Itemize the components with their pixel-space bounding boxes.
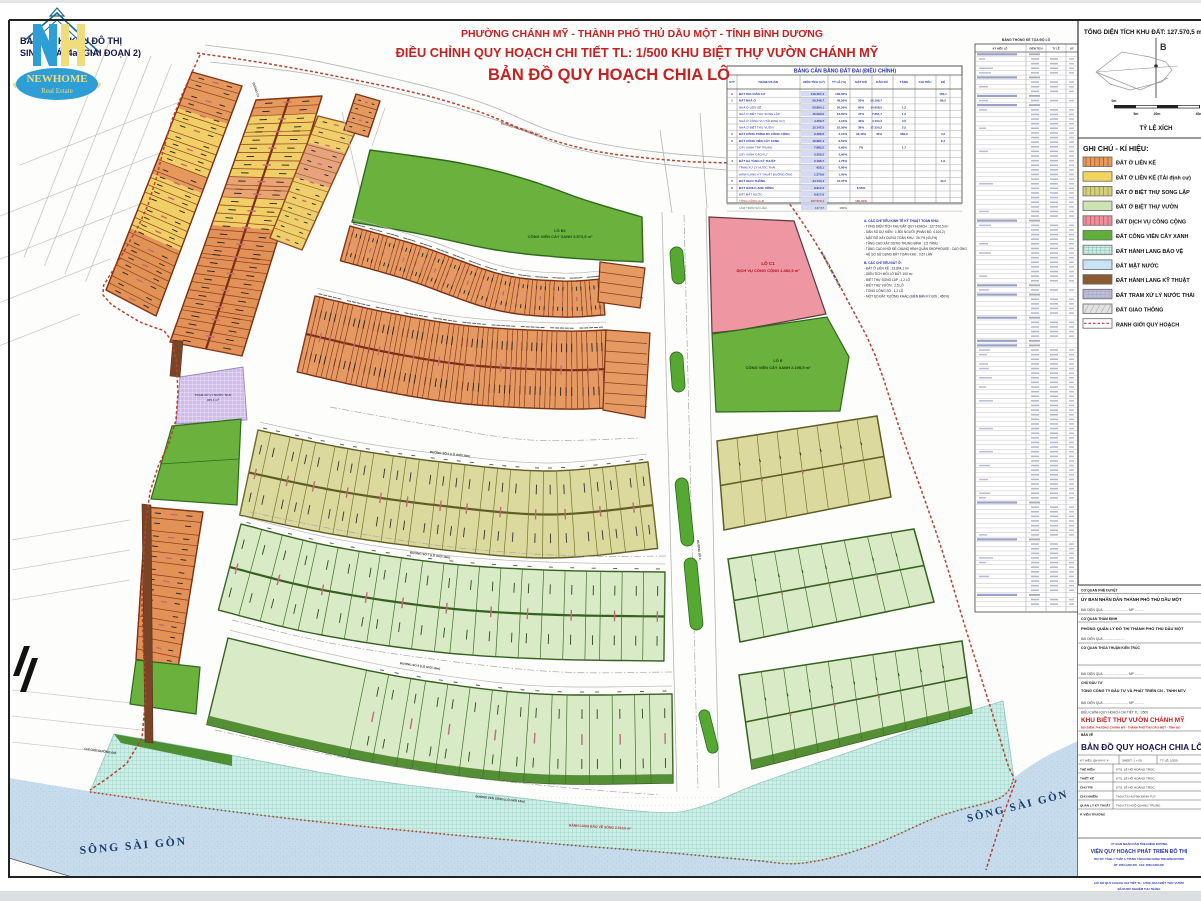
svg-text:2,90%: 2,90% — [838, 152, 847, 156]
svg-text:LÀM TRÒN SỐ LIỆU: LÀM TRÒN SỐ LIỆU — [739, 205, 767, 210]
svg-text:RANH GIỚI QUY HOẠCH: RANH GIỚI QUY HOẠCH — [1116, 320, 1179, 328]
svg-text:CƠ QUAN PHÊ DUYỆT: CƠ QUAN PHÊ DUYỆT — [1081, 588, 1119, 593]
svg-text:ỦY BAN NHÂN DÂN THÀNH PHỐ THỦ: ỦY BAN NHÂN DÂN THÀNH PHỐ THỦ DẦU MỘT — [1081, 597, 1182, 602]
svg-text:BẢN ĐỒ QUY HOẠCH CHIA LÔ: BẢN ĐỒ QUY HOẠCH CHIA LÔ — [1081, 741, 1201, 752]
svg-text:1,00%: 1,00% — [838, 172, 847, 176]
svg-text:ĐẤT Ở BIỆT THỰ SONG LẬP: ĐẤT Ở BIỆT THỰ SONG LẬP — [1116, 188, 1190, 196]
svg-text:36%: 36% — [858, 126, 864, 130]
svg-text:17.350,2: 17.350,2 — [870, 126, 882, 130]
svg-text:4,10%: 4,10% — [838, 119, 847, 123]
svg-text:QUẢN LÝ KỸ THUẬT: QUẢN LÝ KỸ THUẬT — [1080, 802, 1111, 807]
svg-text:CÔNG VIÊN CÂY XANH 3.573,5 m²: CÔNG VIÊN CÂY XANH 3.573,5 m² — [528, 234, 594, 239]
svg-text:MẬT ĐỘ: MẬT ĐỘ — [855, 79, 867, 84]
svg-text:15.093,5: 15.093,5 — [812, 112, 824, 116]
svg-text:Real Estate: Real Estate — [41, 87, 73, 95]
svg-text:SHEET: 1 + 05: SHEET: 1 + 05 — [1122, 759, 1142, 763]
svg-text:B- CÁC CHỈ TIÊU ĐẤT Ở:: B- CÁC CHỈ TIÊU ĐẤT Ở: — [864, 260, 902, 265]
svg-text:CHỦ TRÌ: CHỦ TRÌ — [1080, 784, 1093, 789]
svg-text:KHU BIỆT THỰ VƯỜN CHÁNH MỸ: KHU BIỆT THỰ VƯỜN CHÁNH MỸ — [1081, 715, 1185, 724]
svg-text:BẢN ĐỒ QUY HOẠCH CHIA LÔ: BẢN ĐỒ QUY HOẠCH CHIA LÔ — [488, 65, 730, 84]
svg-text:0m: 0m — [1112, 99, 1117, 103]
svg-text:ĐẤT GIAO THÔNG: ĐẤT GIAO THÔNG — [1116, 306, 1163, 314]
svg-text:ĐÃ ĐƯỢC NGHIỆM THU THÁNG: ĐÃ ĐƯỢC NGHIỆM THU THÁNG — [1118, 886, 1161, 891]
svg-text:A- CÁC CHỈ TIÊU KINH TẾ KỸ THU: A- CÁC CHỈ TIÊU KINH TẾ KỸ THUẬT TOÀN KH… — [864, 218, 939, 223]
svg-text:100,00%: 100,00% — [855, 199, 867, 203]
svg-text:10.987,4: 10.987,4 — [812, 139, 824, 143]
svg-text:ĐẤT HẠ TẦNG KỸ THUẬT: ĐẤT HẠ TẦNG KỸ THUẬT — [739, 158, 776, 163]
svg-text:1,2: 1,2 — [902, 105, 907, 109]
svg-text:ĐẠI DIỆN QUA .................: ĐẠI DIỆN QUA ...........................… — [1081, 607, 1144, 612]
svg-text:NHÀ Ở LIÊN KẾ: NHÀ Ở LIÊN KẾ — [739, 104, 761, 109]
svg-text:925,1: 925,1 — [816, 166, 824, 170]
svg-text:7%: 7% — [859, 146, 864, 150]
svg-text:HÀNH LANG KỸ THUẬT ĐƯỜNG ỐNG: HÀNH LANG KỸ THUẬT ĐƯỜNG ỐNG — [739, 171, 793, 176]
svg-text:20,50%: 20,50% — [837, 105, 848, 109]
svg-text:BẢNG THỐNG KÊ TỌA ĐỘ LÔ: BẢNG THỐNG KÊ TỌA ĐỘ LÔ — [1002, 37, 1051, 42]
svg-text:TỶ LỆ (%): TỶ LỆ (%) — [832, 79, 846, 84]
svg-text:- TẦNG CAO KHỐI ĐẾ CHUNG HÌNH: - TẦNG CAO KHỐI ĐẾ CHUNG HÌNH QUẦN SHOPH… — [864, 246, 967, 251]
svg-text:LÔ C1: LÔ C1 — [761, 259, 775, 266]
svg-text:CÂY XANH CÁCH LY: CÂY XANH CÁCH LY — [739, 151, 768, 156]
svg-text:1.270,6: 1.270,6 — [814, 172, 824, 176]
svg-text:TỔNG CÔNG TY ĐẦU TƯ VÀ PHÁT TR: TỔNG CÔNG TY ĐẦU TƯ VÀ PHÁT TRIỂN CN - T… — [1081, 688, 1186, 693]
svg-text:9,4: 9,4 — [941, 139, 946, 143]
svg-text:56.246,7: 56.246,7 — [812, 99, 824, 103]
svg-text:9.917,2: 9.917,2 — [814, 186, 824, 190]
svg-text:127,57: 127,57 — [815, 206, 825, 210]
svg-text:- BIỆT THỰ SONG LẬP : 1,2 LÔ: - BIỆT THỰ SONG LẬP : 1,2 LÔ — [864, 277, 911, 282]
svg-text:- ĐẤT Ở LIÊN KẾ : 23.804,1 m²: - ĐẤT Ở LIÊN KẾ : 23.804,1 m² — [864, 266, 909, 271]
svg-text:DỊCH VỤ CÔNG CỘNG 2.482,5 m²: DỊCH VỤ CÔNG CỘNG 2.482,5 m² — [736, 268, 800, 273]
svg-text:ThS.KTS NGÔ QUANG TRUNG: ThS.KTS NGÔ QUANG TRUNG — [1116, 802, 1161, 807]
svg-text:CHỦ ĐẦU TƯ: CHỦ ĐẦU TƯ — [1081, 680, 1103, 685]
svg-text:- TẦNG CAO XÂY DỰNG TRUNG BÌNH: - TẦNG CAO XÂY DỰNG TRUNG BÌNH : 2,5 TẦN… — [864, 241, 938, 245]
svg-text:3.305,2: 3.305,2 — [814, 152, 824, 156]
svg-text:40%: 40% — [876, 132, 882, 136]
svg-text:ĐẤT KHU DÂN CƯ: ĐẤT KHU DÂN CƯ — [739, 91, 766, 96]
svg-text:ĐẤT CÔNG VIÊN CÂY XANH: ĐẤT CÔNG VIÊN CÂY XANH — [739, 138, 779, 143]
svg-text:ĐT: 0650.3.822.335 - FAX: 06: ĐT: 0650.3.822.335 - FAX: 0650.3.822.335 — [1114, 863, 1164, 867]
svg-text:13,00%: 13,00% — [837, 112, 848, 116]
svg-text:ĐẤT Ở BIỆT THỰ VƯỜN: ĐẤT Ở BIỆT THỰ VƯỜN — [1116, 203, 1178, 211]
svg-text:STT: STT — [729, 80, 735, 84]
svg-text:2,5: 2,5 — [902, 126, 907, 130]
svg-text:1,2: 1,2 — [902, 112, 907, 116]
svg-text:40%: 40% — [858, 119, 864, 123]
svg-text:- BIỆT THỰ VƯỜN : 2,5 LÔ: - BIỆT THỰ VƯỜN : 2,5 LÔ — [864, 282, 904, 287]
svg-text:100,00%: 100,00% — [835, 92, 847, 96]
svg-text:NHÀ Ở BIỆT THỰ SONG LẬP: NHÀ Ở BIỆT THỰ SONG LẬP — [739, 111, 780, 116]
svg-text:THỂ HIỆN: THỂ HIỆN — [1080, 766, 1095, 771]
svg-text:60%: 60% — [858, 105, 864, 109]
svg-text:KTS. LÊ HỒ HOÀNG TRÚC: KTS. LÊ HỒ HOÀNG TRÚC — [1116, 766, 1155, 771]
svg-text:14.858,5: 14.858,5 — [870, 105, 882, 109]
svg-text:- TỔNG DIỆN TÍCH KHU ĐẤT QUY H: - TỔNG DIỆN TÍCH KHU ĐẤT QUY HOẠCH : 127… — [864, 224, 948, 229]
svg-text:1,9: 1,9 — [941, 159, 946, 163]
svg-text:40m: 40m — [1196, 112, 1201, 116]
svg-text:PHƯỜNG CHÁNH MỸ - THÀNH PHỐ TH: PHƯỜNG CHÁNH MỸ - THÀNH PHỐ THỦ DẦU MỘT … — [461, 26, 823, 40]
svg-text:LÔ E: LÔ E — [773, 358, 783, 363]
svg-text:43,40%: 43,40% — [856, 132, 867, 136]
svg-text:ĐẤT HÀNH LANG BẢO VỆ: ĐẤT HÀNH LANG BẢO VỆ — [1116, 247, 1183, 255]
svg-text:ĐẠI DIỆN QUA .................: ĐẠI DIỆN QUA ........................ — [1081, 636, 1125, 641]
svg-text:980,6: 980,6 — [900, 132, 908, 136]
svg-text:ĐẠI DIỆN QUA .................: ĐẠI DIỆN QUA ...........................… — [1081, 700, 1144, 705]
svg-text:TỶ LỆ: 1/500: TỶ LỆ: 1/500 — [1160, 758, 1178, 763]
svg-text:8,56%: 8,56% — [857, 186, 866, 190]
svg-text:ĐẤT HÀNH LANG SÔNG: ĐẤT HÀNH LANG SÔNG — [739, 185, 774, 190]
svg-text:P. VIỆN TRƯỞNG: P. VIỆN TRƯỞNG — [1080, 811, 1106, 816]
svg-text:8.917,6: 8.917,6 — [814, 193, 824, 197]
svg-text:ĐẤT DỊCH VỤ CÔNG CỘNG: ĐẤT DỊCH VỤ CÔNG CỘNG — [1116, 217, 1186, 225]
svg-text:GHI CHÚ - KÍ HIỆU:: GHI CHÚ - KÍ HIỆU: — [1083, 144, 1148, 153]
svg-text:10,50%: 10,50% — [837, 126, 848, 130]
svg-text:20m: 20m — [1154, 112, 1161, 116]
svg-text:THÀNH PHẦN: THÀNH PHẦN — [758, 79, 778, 84]
svg-text:1,76%: 1,76% — [838, 159, 847, 163]
svg-text:NEWHOME: NEWHOME — [26, 73, 87, 85]
svg-text:TRẠM XỬ LÝ NƯỚC THẢI: TRẠM XỬ LÝ NƯỚC THẢI — [739, 165, 775, 170]
svg-text:40,2: 40,2 — [940, 179, 946, 183]
svg-text:48,50%: 48,50% — [837, 99, 848, 103]
svg-text:6,60%: 6,60% — [838, 146, 847, 150]
svg-text:41,07%: 41,07% — [837, 179, 848, 183]
svg-text:50%: 50% — [858, 99, 864, 103]
svg-text:- DÂN SỐ DỰ KIẾN : 1.500 NGƯỜI: - DÂN SỐ DỰ KIẾN : 1.500 NGƯỜI (PHÂN BỐ:… — [864, 229, 945, 234]
svg-text:KÝ HIỆU QH-04 N° 4: KÝ HIỆU QH-04 N° 4 — [1080, 758, 1109, 763]
svg-text:ĐẤT NHÀ Ở: ĐẤT NHÀ Ở — [739, 98, 756, 103]
svg-text:- DIỆN TÍCH MỖI LÔ ĐẤT: 100 m²: - DIỆN TÍCH MỖI LÔ ĐẤT: 100 m² — [864, 271, 912, 276]
svg-text:TỶ LỆ XÍCH: TỶ LỆ XÍCH — [1139, 124, 1172, 132]
svg-text:100%: 100% — [839, 206, 847, 210]
svg-text:4.104,2: 4.104,2 — [872, 119, 882, 123]
svg-text:ĐẤT HÀNH LANG KỸ THUẬT: ĐẤT HÀNH LANG KỸ THUẬT — [1116, 277, 1190, 284]
svg-text:7.851,7: 7.851,7 — [872, 112, 882, 116]
svg-text:CÔNG VIÊN CÂY XANH 2.195,5 m²: CÔNG VIÊN CÂY XANH 2.195,5 m² — [746, 365, 812, 370]
svg-text:2.482,5: 2.482,5 — [814, 132, 824, 136]
svg-text:ĐẤT MẶT NƯỚC: ĐẤT MẶT NƯỚC — [739, 192, 763, 197]
svg-text:BẢN VẼ: BẢN VẼ — [1081, 732, 1093, 737]
svg-text:ĐẠI DIỆN QUA .................: ĐẠI DIỆN QUA ...........................… — [1081, 671, 1144, 676]
svg-text:- TỔNG CỘNG SỐ : 1,2 LÔ: - TỔNG CỘNG SỐ : 1,2 LÔ — [864, 288, 904, 293]
svg-text:VIỆN QUY HOẠCH PHÁT TRIỂN ĐÔ T: VIỆN QUY HOẠCH PHÁT TRIỂN ĐÔ THỊ — [1091, 847, 1188, 855]
svg-text:KTS. LÊ HỒ HOÀNG TRÚC: KTS. LÊ HỒ HOÀNG TRÚC — [1116, 775, 1155, 780]
svg-text:- HỆ SỐ SỬ DỤNG ĐẤT TOÀN KHU :: - HỆ SỐ SỬ DỤNG ĐẤT TOÀN KHU : 0,67 LẦN — [864, 252, 933, 257]
svg-text:LÔ B1: LÔ B1 — [554, 228, 567, 233]
svg-text:44.744,1: 44.744,1 — [812, 179, 824, 183]
svg-text:BẢNG CÂN BẰNG ĐẤT ĐAI (ĐIỀU CH: BẢNG CÂN BẰNG ĐẤT ĐAI (ĐIỀU CHỈNH) — [794, 67, 897, 75]
svg-text:ThS.KTS HUỲNH ĐỊNH TÚY: ThS.KTS HUỲNH ĐỊNH TÚY — [1116, 794, 1156, 798]
svg-text:925,1 m²: 925,1 m² — [207, 398, 219, 402]
svg-text:0,80%: 0,80% — [838, 166, 847, 170]
svg-text:ĐẤT GIAO THÔNG: ĐẤT GIAO THÔNG — [739, 178, 766, 183]
svg-text:CHỦ NHIỆM: CHỦ NHIỆM — [1080, 793, 1098, 798]
svg-text:HỒ SƠ QUY HOẠCH CHI TIẾT TL: 1: HỒ SƠ QUY HOẠCH CHI TIẾT TL: 1/500. KHU … — [1094, 880, 1183, 885]
svg-text:116.457,4: 116.457,4 — [811, 92, 825, 96]
svg-text:KẾ: KẾ — [941, 79, 945, 84]
svg-text:B: B — [1160, 42, 1167, 52]
svg-text:ỦY BAN NHÂN DÂN TỈNH BÌNH DƯƠN: ỦY BAN NHÂN DÂN TỈNH BÌNH DƯƠNG — [1111, 841, 1168, 846]
svg-text:TẦNG: TẦNG — [900, 80, 909, 84]
svg-text:ĐIỀU CHỈNH QUY HOẠCH CHI TIẾT: ĐIỀU CHỈNH QUY HOẠCH CHI TIẾT TL: 1/500 … — [396, 45, 879, 60]
svg-text:ĐẤT CÔNG VIÊN CÂY XANH: ĐẤT CÔNG VIÊN CÂY XANH — [1116, 232, 1188, 240]
svg-text:CHỈ TIÊU: CHỈ TIÊU — [919, 79, 932, 84]
svg-text:2.196,7: 2.196,7 — [814, 159, 824, 163]
svg-text:ĐẤT Ở LIÊN KẾ: ĐẤT Ở LIÊN KẾ — [1116, 159, 1156, 167]
svg-text:KTS. LÊ HỒ HOÀNG TRÚC: KTS. LÊ HỒ HOÀNG TRÚC — [1116, 784, 1155, 789]
svg-text:ĐẤT MẶT NƯỚC: ĐẤT MẶT NƯỚC — [1116, 262, 1159, 270]
svg-text:47%: 47% — [858, 112, 864, 116]
svg-text:CÂY XANH TẬP TRUNG: CÂY XANH TẬP TRUNG — [739, 145, 773, 150]
svg-text:TỔNG DIỆN TÍCH KHU ĐẤT: 127.57: TỔNG DIỆN TÍCH KHU ĐẤT: 127.570,5 m² — [1084, 28, 1201, 36]
svg-text:4,2: 4,2 — [941, 132, 946, 136]
svg-text:ĐẤT CÔNG TRÌNH DV CÔNG CỘNG: ĐẤT CÔNG TRÌNH DV CÔNG CỘNG — [739, 131, 790, 136]
svg-text:150,1: 150,1 — [939, 92, 947, 96]
svg-text:2,10%: 2,10% — [838, 132, 847, 136]
svg-text:4.452,7: 4.452,7 — [814, 119, 824, 123]
svg-text:PHÒNG QUẢN LÝ ĐÔ THỊ THÀNH PHỐ: PHÒNG QUẢN LÝ ĐÔ THỊ THÀNH PHỐ THỦ DẦU M… — [1081, 626, 1184, 631]
svg-text:9,50%: 9,50% — [838, 139, 847, 143]
svg-text:DÂN SỐ: DÂN SỐ — [876, 79, 888, 84]
svg-text:ĐẤT Ở LIÊN KẾ (TÁI định cư): ĐẤT Ở LIÊN KẾ (TÁI định cư) — [1116, 173, 1191, 181]
svg-text:4,5: 4,5 — [902, 119, 907, 123]
svg-text:TỔNG CỘNG A+B: TỔNG CỘNG A+B — [739, 198, 764, 203]
svg-text:THIẾT KẾ: THIẾT KẾ — [1080, 775, 1094, 780]
svg-text:86,2: 86,2 — [940, 99, 946, 103]
svg-text:127.570,1: 127.570,1 — [811, 199, 825, 203]
svg-text:56.186,7: 56.186,7 — [870, 99, 882, 103]
svg-text:TRẠM XỬ LÝ NƯỚC THẢI: TRẠM XỬ LÝ NƯỚC THẢI — [195, 392, 232, 397]
svg-text:- MỘT SỐ ĐẤT XƯỞNG KHÁC (BIÊN: - MỘT SỐ ĐẤT XƯỞNG KHÁC (BIÊN BẢN KÝ ĐỔI… — [864, 294, 949, 299]
svg-text:5m: 5m — [1134, 112, 1139, 116]
svg-text:- MẬT ĐỘ XÂY DỰNG TOÀN KHU : 2: - MẬT ĐỘ XÂY DỰNG TOÀN KHU : 26,7% (40,2… — [864, 235, 937, 240]
svg-text:ĐẤT TRAM XỬ LÝ NƯỚC THẢI: ĐẤT TRAM XỬ LÝ NƯỚC THẢI — [1116, 291, 1195, 299]
svg-text:NHÀ Ở BIỆT THỰ VƯỜN: NHÀ Ở BIỆT THỰ VƯỜN — [739, 125, 774, 130]
svg-text:ĐỊA ĐIỂM: PHƯỜNG CHÁNH MỸ - TH: ĐỊA ĐIỂM: PHƯỜNG CHÁNH MỸ - THÀNH PHỐ TH… — [1081, 725, 1180, 730]
svg-text:NHÀ Ở CÔNG VỤ (TÁI ĐỊNH CƯ): NHÀ Ở CÔNG VỤ (TÁI ĐỊNH CƯ) — [739, 118, 785, 123]
svg-text:CƠ QUAN THỎA THUẬN KIẾN TRÚC: CƠ QUAN THỎA THUẬN KIẾN TRÚC — [1081, 645, 1140, 650]
svg-text:ĐIỀU CHỈNH QUY HOẠCH CHI TIẾT: ĐIỀU CHỈNH QUY HOẠCH CHI TIẾT TL: 1/500 — [1081, 710, 1148, 715]
svg-text:1,7: 1,7 — [902, 146, 907, 150]
svg-text:CƠ QUAN THẨM ĐỊNH: CƠ QUAN THẨM ĐỊNH — [1081, 616, 1118, 621]
svg-text:12.147,5: 12.147,5 — [812, 126, 824, 130]
svg-text:DIỆN TÍCH (m²): DIỆN TÍCH (m²) — [803, 79, 825, 84]
svg-text:23.804,1: 23.804,1 — [812, 105, 824, 109]
svg-text:7.682,2: 7.682,2 — [814, 146, 824, 150]
